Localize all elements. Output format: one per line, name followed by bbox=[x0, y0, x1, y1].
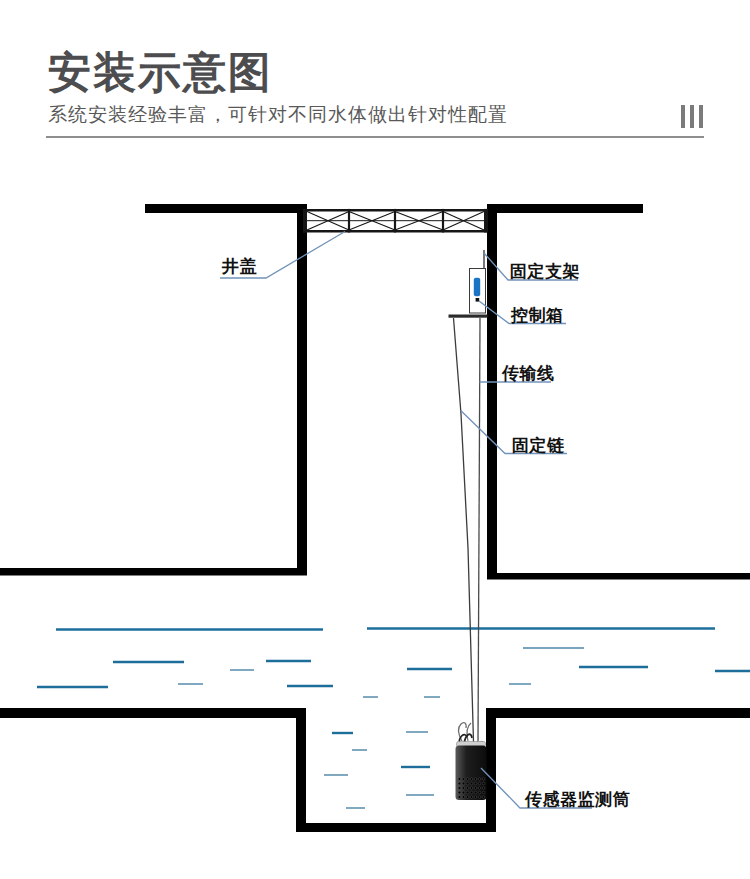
sump-floor bbox=[296, 823, 496, 832]
sump-wall-right bbox=[486, 708, 496, 832]
decoration-bar bbox=[699, 105, 703, 128]
shaft-wall-right bbox=[487, 204, 497, 579]
decoration-bars-icon bbox=[681, 105, 703, 128]
control-box-indicator bbox=[474, 278, 480, 297]
shaft-wall-left bbox=[297, 204, 307, 575]
mid-ledge-left bbox=[0, 568, 307, 576]
ground-bar-left bbox=[145, 204, 298, 213]
label-control-box: 控制箱 bbox=[510, 305, 564, 325]
ground-bar-right bbox=[487, 204, 643, 213]
fixed-chain-line bbox=[454, 318, 474, 742]
bottom-ledge-left bbox=[0, 708, 306, 718]
water-dashes-light bbox=[178, 648, 584, 808]
label-sensor-cylinder: 传感器监测筒 bbox=[524, 789, 631, 809]
label-fixed-bracket: 固定支架 bbox=[510, 261, 580, 281]
label-transmission-line: 传输线 bbox=[501, 363, 555, 383]
control-box-button bbox=[476, 298, 480, 302]
sensor-cylinder-device bbox=[456, 723, 487, 800]
installation-diagram-page: 安装示意图 系统安装经验丰富，可针对不同水体做出针对性配置 bbox=[0, 0, 750, 879]
decoration-bar bbox=[681, 105, 685, 128]
well-cross-section-diagram: 井盖 固定支架 控制箱 传输线 固定链 传感器监测筒 bbox=[0, 134, 750, 879]
page-title: 安装示意图 bbox=[48, 50, 273, 95]
page-subtitle: 系统安装经验丰富，可针对不同水体做出针对性配置 bbox=[48, 102, 508, 128]
sump-wall-left bbox=[296, 708, 306, 832]
label-fixed-chain: 固定链 bbox=[512, 435, 565, 455]
manhole-cover-truss bbox=[303, 209, 488, 233]
mounting-shelf bbox=[449, 315, 488, 318]
decoration-bar bbox=[690, 105, 694, 128]
bottom-ledge-right bbox=[486, 708, 750, 718]
mid-ledge-right bbox=[487, 573, 750, 580]
ground-structure bbox=[0, 204, 750, 832]
label-manhole-cover: 井盖 bbox=[221, 256, 257, 276]
water-surface-lines bbox=[56, 629, 715, 630]
control-box-assembly bbox=[449, 250, 488, 318]
device-wire bbox=[467, 723, 471, 741]
